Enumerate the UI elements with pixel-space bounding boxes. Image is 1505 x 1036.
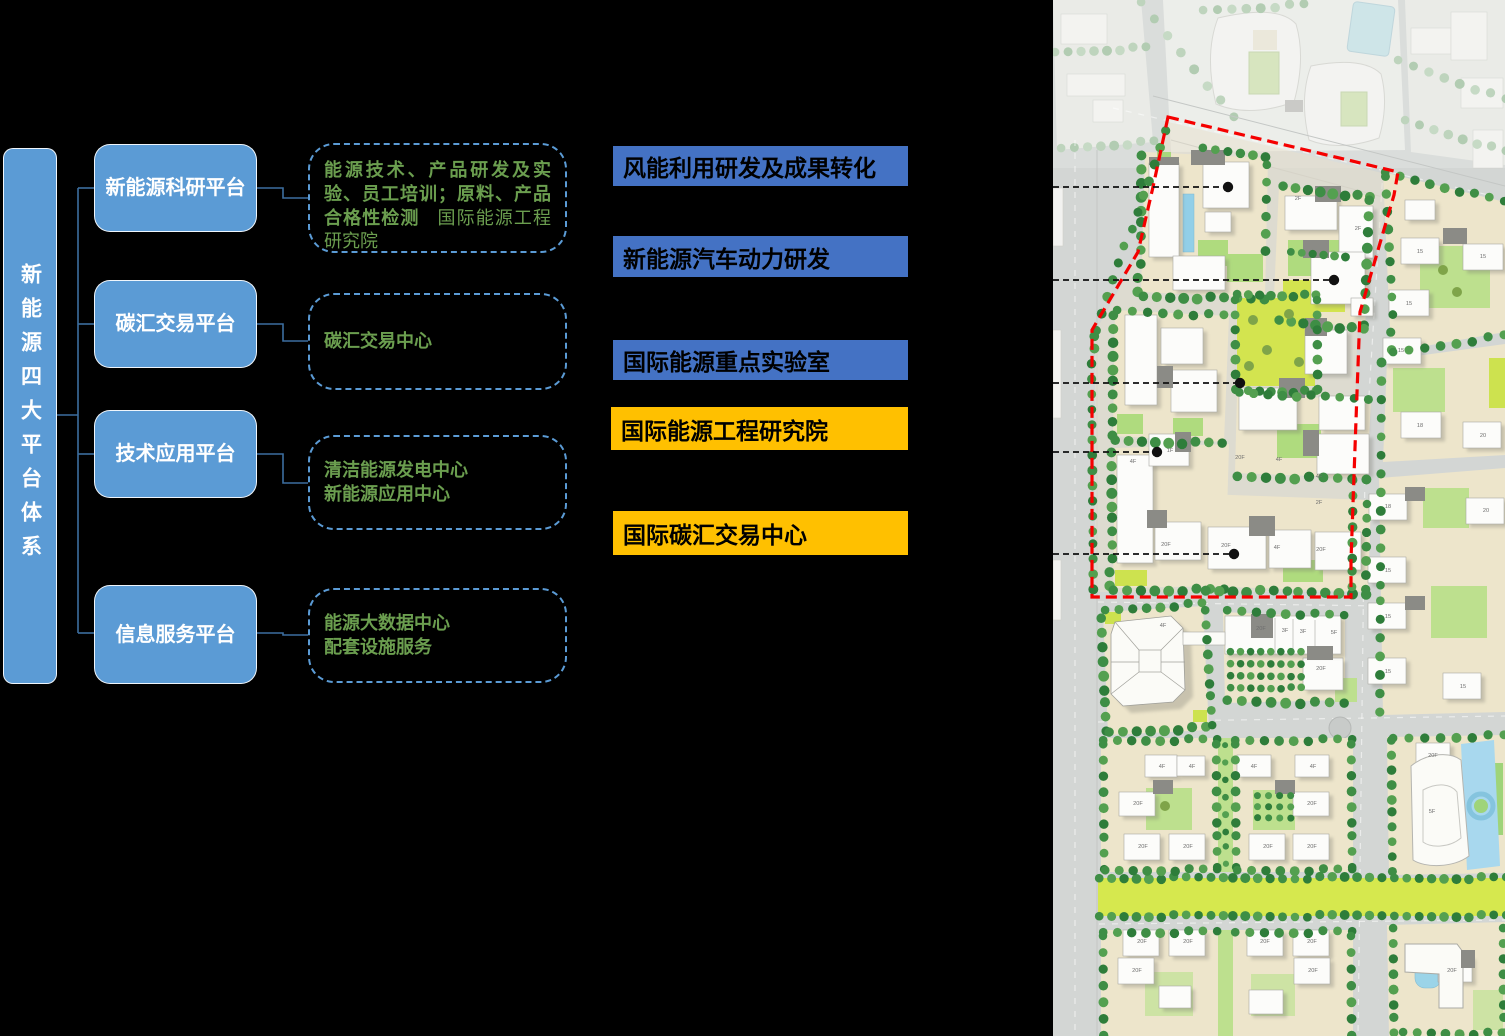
svg-text:20F: 20F [1316, 547, 1326, 553]
callout-label: 国际能源重点实验室 [623, 343, 830, 377]
svg-text:20F: 20F [1133, 801, 1143, 807]
callout-label: 国际碳汇交易中心 [623, 516, 807, 550]
svg-text:20F: 20F [1256, 626, 1266, 632]
svg-text:4F: 4F [1130, 459, 1137, 465]
svg-text:2F: 2F [1316, 500, 1323, 506]
svg-text:20F: 20F [1263, 844, 1273, 850]
callout-wind-research: 风能利用研发及成果转化 [613, 146, 908, 186]
detail-box-carbon-trade: 碳汇交易中心 [308, 293, 567, 390]
svg-text:20F: 20F [1137, 939, 1147, 945]
svg-text:20F: 20F [1316, 666, 1326, 672]
svg-text:20: 20 [1480, 433, 1486, 439]
svg-text:5F: 5F [1331, 630, 1338, 636]
svg-text:15: 15 [1398, 348, 1404, 354]
site-plan-svg: 2F2F20F4F4F2F4F1F20F20F4F20F4F20F3F3F5F2… [1053, 0, 1505, 1036]
callout-ev-power: 新能源汽车动力研发 [613, 236, 908, 277]
svg-text:15: 15 [1385, 614, 1391, 620]
svg-text:3F: 3F [1300, 629, 1307, 635]
svg-text:20F: 20F [1308, 968, 1318, 974]
svg-text:20F: 20F [1183, 939, 1193, 945]
platform-node-carbon-trade: 碳汇交易平台 [94, 280, 257, 368]
svg-text:2F: 2F [1355, 226, 1362, 232]
detail-text: 碳汇交易中心 [324, 330, 551, 354]
platform-label: 碳汇交易平台 [116, 311, 236, 337]
callout-label: 风能利用研发及成果转化 [623, 149, 876, 183]
svg-text:4F: 4F [1189, 764, 1196, 770]
svg-text:18: 18 [1385, 504, 1391, 510]
svg-text:20F: 20F [1161, 542, 1171, 548]
svg-text:4F: 4F [1159, 764, 1166, 770]
callout-engineering-institute: 国际能源工程研究院 [611, 407, 908, 450]
svg-text:4F: 4F [1316, 474, 1323, 480]
svg-text:4F: 4F [1276, 457, 1283, 463]
svg-text:4F: 4F [1251, 764, 1258, 770]
svg-text:20F: 20F [1221, 543, 1231, 549]
platform-label: 信息服务平台 [116, 622, 236, 648]
platform-node-tech-application: 技术应用平台 [94, 410, 257, 498]
svg-text:15: 15 [1385, 568, 1391, 574]
svg-text:20F: 20F [1138, 844, 1148, 850]
site-plan-map: 2F2F20F4F4F2F4F1F20F20F4F20F4F20F3F3F5F2… [1053, 0, 1505, 1036]
svg-text:18: 18 [1417, 423, 1423, 429]
svg-text:15: 15 [1460, 684, 1466, 690]
callout-carbon-center: 国际碳汇交易中心 [613, 511, 908, 555]
svg-text:4F: 4F [1160, 623, 1167, 629]
svg-text:20F: 20F [1132, 968, 1142, 974]
detail-box-tech-application: 清洁能源发电中心 新能源应用中心 [308, 435, 567, 530]
detail-text: 清洁能源发电中心 新能源应用中心 [324, 459, 551, 507]
svg-text:20: 20 [1483, 508, 1489, 514]
detail-box-research: 能源技术、产品研发及实验、员工培训；原料、产品合格性检测国际能源工程研究院 [308, 143, 567, 253]
svg-text:15: 15 [1480, 254, 1486, 260]
platform-node-research: 新能源科研平台 [94, 144, 257, 232]
detail-text: 能源大数据中心 配套设施服务 [324, 612, 551, 660]
svg-text:20F: 20F [1447, 968, 1457, 974]
svg-text:2F: 2F [1295, 196, 1302, 202]
platform-node-info-service: 信息服务平台 [94, 585, 257, 684]
svg-text:4F: 4F [1310, 764, 1317, 770]
svg-text:15: 15 [1385, 669, 1391, 675]
slide: 新能源四大平台体系 新能源科研平台 碳汇交易平台 技术应用平台 信息服务平台 能… [0, 0, 1505, 1036]
svg-text:20F: 20F [1183, 844, 1193, 850]
svg-text:15: 15 [1417, 249, 1423, 255]
svg-text:20F: 20F [1307, 939, 1317, 945]
callout-label: 新能源汽车动力研发 [623, 240, 830, 274]
svg-text:20F: 20F [1307, 801, 1317, 807]
svg-text:20F: 20F [1235, 455, 1245, 461]
svg-text:1F: 1F [1167, 448, 1174, 454]
root-node: 新能源四大平台体系 [3, 148, 57, 684]
svg-text:20F: 20F [1428, 753, 1438, 759]
platform-label: 新能源科研平台 [106, 175, 246, 201]
callout-energy-lab: 国际能源重点实验室 [613, 340, 908, 380]
svg-text:5F: 5F [1429, 809, 1436, 815]
detail-box-info-service: 能源大数据中心 配套设施服务 [308, 588, 567, 683]
svg-text:20F: 20F [1307, 844, 1317, 850]
svg-text:3F: 3F [1282, 628, 1289, 634]
svg-text:15: 15 [1406, 301, 1412, 307]
platform-label: 技术应用平台 [116, 441, 236, 467]
callout-label: 国际能源工程研究院 [621, 412, 828, 446]
svg-text:4F: 4F [1274, 545, 1281, 551]
root-node-label: 新能源四大平台体系 [20, 263, 41, 569]
svg-text:20F: 20F [1260, 939, 1270, 945]
